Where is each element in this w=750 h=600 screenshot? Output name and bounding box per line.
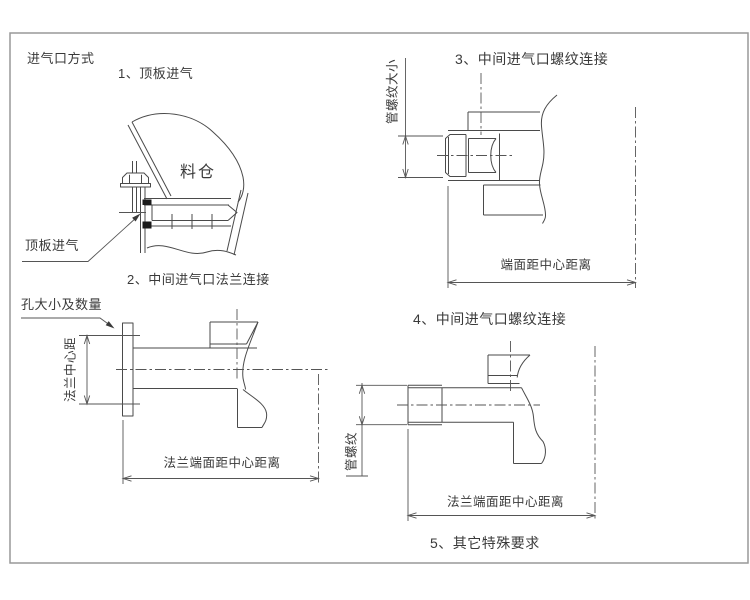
hole-size-callout-label: 孔大小及数量 xyxy=(21,297,102,313)
pipe-thread-size-label: 管螺纹大小 xyxy=(386,58,401,126)
drawing-sheet: 进气口方式 1、顶板进气 料仓 顶板进气 2、中间进气口法兰连接 孔大小及数量 … xyxy=(0,0,750,600)
section2-title: 2、中间进气口法兰连接 xyxy=(127,272,270,288)
thread-connection-drawing-3 xyxy=(398,58,636,288)
drawing-title: 进气口方式 xyxy=(27,51,95,67)
thread-connection-drawing-4 xyxy=(346,341,595,521)
end-face-to-center-label: 端面距中心距离 xyxy=(496,258,596,273)
gasket-seal xyxy=(143,200,152,206)
bin-label: 料仓 xyxy=(180,163,216,182)
drawing-canvas xyxy=(0,0,750,600)
gasket-seal xyxy=(143,222,152,229)
flange-face-to-center-label: 法兰端面距中心距离 xyxy=(161,456,283,471)
sheet-border xyxy=(10,33,748,563)
section5-title: 5、其它特殊要求 xyxy=(430,535,540,552)
flange-face-to-center-label-2: 法兰端面距中心距离 xyxy=(447,495,563,510)
section3-title: 3、中间进气口螺纹连接 xyxy=(455,51,608,68)
hole-size-callout-leader xyxy=(21,318,115,329)
section1-title: 1、顶板进气 xyxy=(118,66,193,82)
flange-center-distance-label: 法兰中心距 xyxy=(64,335,79,405)
top-plate-callout-label: 顶板进气 xyxy=(25,238,79,254)
section4-title: 4、中间进气口螺纹连接 xyxy=(413,311,566,328)
bolt-nut xyxy=(123,173,149,184)
pipe-thread-label: 管螺纹 xyxy=(345,429,360,475)
